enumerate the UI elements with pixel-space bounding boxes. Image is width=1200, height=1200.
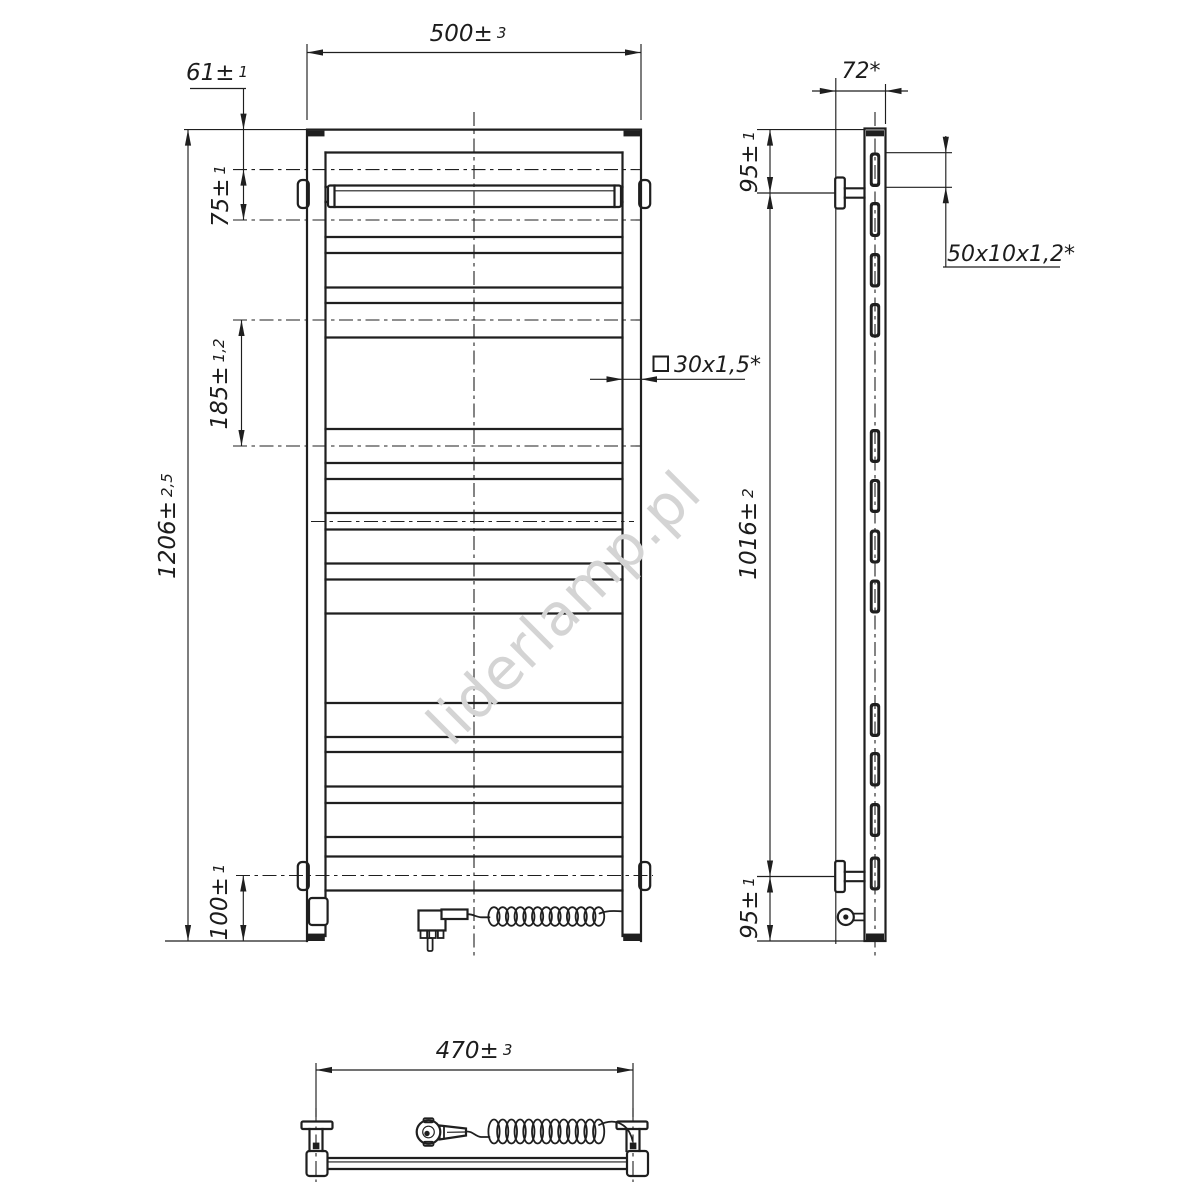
dimension-arrow [240, 876, 246, 892]
dim-185: 185±1,2 [207, 338, 233, 429]
dimension-arrow [240, 170, 246, 186]
dimension-arrow [625, 49, 641, 55]
technical-drawing-page: liderlamp.pl 500±3 61±1 75±1 185±1,2 120… [0, 0, 1200, 1200]
dimension-arrow [767, 193, 773, 209]
cable-gland-dot [843, 914, 848, 919]
dimension-arrow [307, 49, 323, 55]
dim-depth-72: 72* [842, 59, 881, 84]
post-cap [308, 934, 325, 941]
dim-total-width: 500±3 [430, 21, 507, 47]
plug-boot [442, 910, 468, 920]
label-post-profile: 30x1,5* [674, 353, 761, 378]
dim-95-bottom: 95±1 [737, 877, 763, 939]
dimension-arrow [767, 877, 773, 893]
dimension-arrow [767, 861, 773, 877]
plug-face-dot [424, 1131, 429, 1136]
dim-100: 100±1 [207, 864, 233, 941]
post-end-block [627, 1151, 648, 1176]
post-cap [623, 934, 640, 941]
square-profile-symbol [654, 357, 669, 372]
wall-bracket-plate [302, 1122, 333, 1130]
dimension-arrow [607, 376, 623, 382]
dimension-arrow [316, 1067, 332, 1073]
dimension-arrow [767, 925, 773, 941]
dimension-arrow [767, 177, 773, 193]
dimension-arrow [641, 376, 657, 382]
post-cap [308, 131, 325, 137]
wall-bracket-plate [835, 861, 845, 892]
dimension-arrow [240, 925, 246, 941]
dim-hanger-offset: 61±1 [186, 60, 248, 86]
plug-prong [428, 938, 433, 951]
dim-75: 75±1 [208, 165, 234, 227]
bottom-view [302, 1063, 649, 1182]
dimension-arrow [767, 130, 773, 146]
dimension-arrow [617, 1067, 633, 1073]
dimension-arrow [185, 130, 191, 146]
dimension-arrow [240, 204, 246, 220]
heater-housing [309, 898, 328, 925]
dimension-arrow [238, 430, 244, 446]
wall-bracket-plate [617, 1122, 648, 1130]
cable-lead [468, 914, 490, 917]
tube-cap [866, 130, 884, 136]
dimension-arrow [943, 137, 949, 153]
drawing-canvas: liderlamp.pl 500±3 61±1 75±1 185±1,2 120… [0, 0, 1200, 1200]
dim-470: 470±3 [436, 1038, 513, 1064]
label-rung-profile: 50x10x1,2* [947, 242, 1075, 267]
side-view [757, 78, 1060, 957]
tube-cap [866, 934, 884, 941]
dimension-arrow [943, 187, 949, 203]
post-cap [624, 131, 641, 137]
dim-total-height: 1206±2,5 [155, 473, 181, 579]
dimension-arrow [238, 320, 244, 336]
dimension-arrow [820, 88, 836, 94]
dimension-arrow [185, 925, 191, 941]
watermark-text: liderlamp.pl [414, 458, 714, 758]
wall-bracket-plate [835, 178, 845, 209]
dimension-arrow [886, 88, 902, 94]
dim-1016: 1016±2 [736, 488, 762, 579]
cable-lead [466, 1131, 490, 1137]
dim-95-top: 95±1 [737, 131, 763, 193]
post-end-block [307, 1151, 328, 1176]
dimension-arrow [240, 114, 246, 130]
